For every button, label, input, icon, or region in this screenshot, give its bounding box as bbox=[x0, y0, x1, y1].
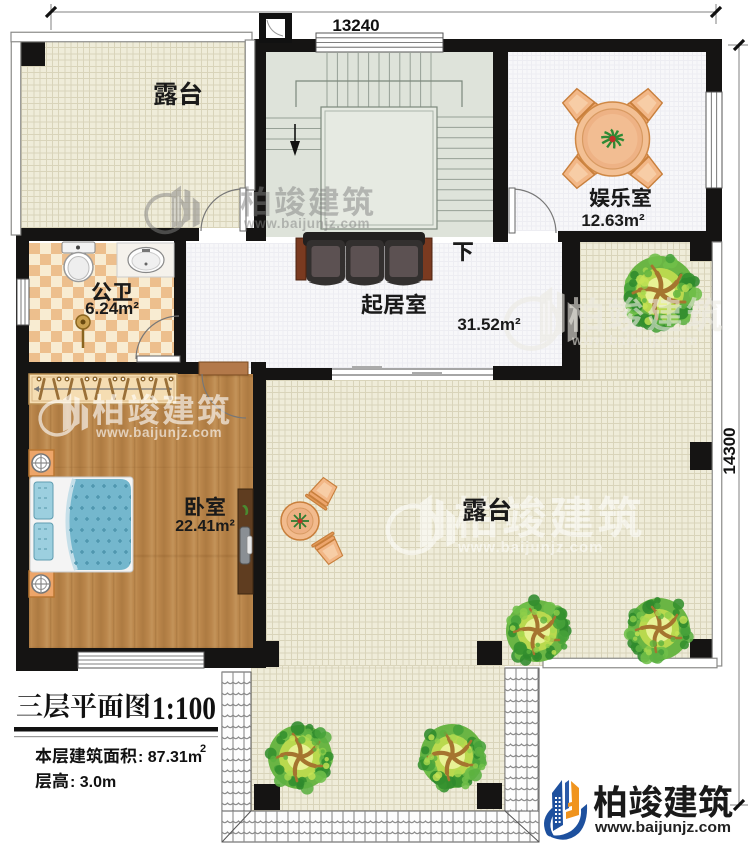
svg-text:13240: 13240 bbox=[332, 16, 379, 35]
svg-text:2: 2 bbox=[200, 743, 206, 755]
svg-text:1:100: 1:100 bbox=[152, 691, 216, 727]
svg-text:www.baijunjz.com: www.baijunjz.com bbox=[594, 819, 731, 836]
svg-text:: 3.0m: : 3.0m bbox=[70, 774, 116, 791]
svg-text:: 87.31m: : 87.31m bbox=[138, 749, 202, 766]
svg-text:www.baijunjz.com: www.baijunjz.com bbox=[95, 425, 222, 440]
svg-text:www.baijunjz.com: www.baijunjz.com bbox=[571, 333, 698, 348]
svg-text:www.baijunjz.com: www.baijunjz.com bbox=[457, 539, 603, 556]
svg-text:12.63m²: 12.63m² bbox=[581, 211, 645, 230]
svg-text:www.baijunjz.com: www.baijunjz.com bbox=[243, 216, 370, 231]
svg-text:22.41m²: 22.41m² bbox=[175, 518, 235, 535]
svg-text:14300: 14300 bbox=[720, 427, 739, 474]
svg-text:31.52m²: 31.52m² bbox=[457, 315, 521, 334]
svg-text:6.24m²: 6.24m² bbox=[85, 299, 139, 318]
